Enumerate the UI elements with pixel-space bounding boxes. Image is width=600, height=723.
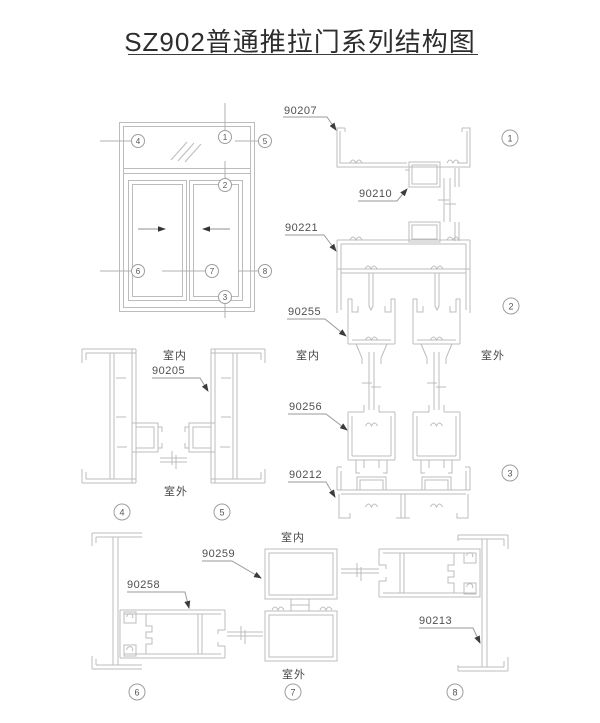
roller-hooks bbox=[356, 460, 387, 473]
section-3-profile bbox=[337, 405, 470, 518]
glass-tick bbox=[362, 383, 381, 387]
part-label-90221: 90221 bbox=[285, 222, 318, 234]
section-marker-6: 6 bbox=[129, 684, 146, 701]
profile-90255-sash-top bbox=[348, 299, 395, 410]
leader-90259 bbox=[202, 561, 261, 578]
callout-7: 7 bbox=[205, 264, 219, 278]
profile-90212-track bbox=[337, 467, 470, 518]
leader-90205 bbox=[152, 378, 208, 391]
track-rail-bump bbox=[357, 477, 386, 490]
screw-boss bbox=[431, 504, 443, 507]
part-label-90207: 90207 bbox=[284, 105, 317, 117]
glass-tick bbox=[172, 451, 176, 469]
part-label-90210: 90210 bbox=[359, 188, 392, 200]
glass-pane-with-tick bbox=[341, 563, 379, 581]
screw-boss bbox=[366, 504, 378, 507]
section-2-profile bbox=[337, 237, 470, 410]
indoor-label-bottom: 室内 bbox=[281, 529, 305, 545]
leader-90256 bbox=[288, 414, 347, 430]
leader-90212 bbox=[288, 482, 335, 497]
callout-1: 1 bbox=[218, 130, 232, 144]
interlock-hooks bbox=[291, 599, 309, 611]
glass-hatch bbox=[171, 142, 201, 162]
indoor-label-midleft: 室内 bbox=[163, 347, 187, 363]
left-jamb-profile bbox=[92, 533, 142, 669]
screw-port-clips bbox=[464, 553, 476, 594]
profile-90259-interlock bbox=[265, 549, 337, 661]
part-label-90213: 90213 bbox=[419, 615, 452, 627]
glass-tick bbox=[438, 200, 456, 204]
part-label-90255: 90255 bbox=[288, 306, 321, 318]
profile-90221-track bbox=[337, 240, 470, 313]
section-678-profiles bbox=[92, 533, 508, 671]
outdoor-label-bottom: 室外 bbox=[282, 666, 306, 682]
profile-90256-sash-bottom-right bbox=[413, 405, 460, 490]
section-marker-4: 4 bbox=[114, 504, 131, 521]
leader-90255 bbox=[287, 319, 346, 336]
leader-90207 bbox=[283, 117, 336, 130]
profile-90213-jamb bbox=[458, 535, 508, 671]
callout-2: 2 bbox=[218, 178, 232, 192]
section-marker-3: 3 bbox=[502, 465, 519, 482]
track-guide-rails bbox=[369, 273, 439, 310]
keyed-wall bbox=[448, 553, 454, 593]
section-marker-1: 1 bbox=[502, 130, 519, 147]
section-marker-5: 5 bbox=[214, 504, 231, 521]
left-sash-inner bbox=[133, 185, 183, 297]
part-label-90205: 90205 bbox=[152, 365, 185, 377]
leader-90213 bbox=[419, 628, 480, 643]
right-sash-stile-box bbox=[379, 549, 480, 597]
jamb-profile-mirrored bbox=[185, 349, 265, 483]
profile-90210 bbox=[405, 162, 440, 187]
left-sash-outer bbox=[129, 181, 187, 301]
part-label-90256: 90256 bbox=[289, 401, 322, 413]
right-sash-outer bbox=[190, 181, 243, 301]
screw-port-clips bbox=[124, 612, 136, 656]
outdoor-label-midleft: 室外 bbox=[164, 483, 188, 499]
callout-4: 4 bbox=[131, 134, 145, 148]
transom-divider bbox=[123, 169, 251, 174]
outdoor-label-midcol: 室外 bbox=[481, 347, 505, 363]
glass-pane bbox=[160, 458, 187, 462]
part-label-90259: 90259 bbox=[202, 548, 235, 560]
part-label-90258: 90258 bbox=[127, 579, 160, 591]
profile-90258-stile bbox=[120, 610, 225, 658]
section-1-profile bbox=[337, 128, 470, 242]
leader-90258 bbox=[127, 592, 189, 608]
glass-pane-with-tick bbox=[227, 626, 263, 644]
jamb-profile bbox=[82, 349, 162, 483]
callout-6: 6 bbox=[131, 264, 145, 278]
section-marker-8: 8 bbox=[447, 684, 464, 701]
section-marker-7: 7 bbox=[285, 684, 302, 701]
profile-90256-sash-bottom bbox=[348, 405, 395, 490]
callout-3: 3 bbox=[218, 290, 232, 304]
leader-90221 bbox=[285, 235, 336, 251]
section-marker-2: 2 bbox=[503, 298, 520, 315]
glass-pane bbox=[369, 352, 374, 410]
drawing-sheet: SZ902普通推拉门系列结构图 bbox=[0, 0, 600, 723]
slide-direction-arrows bbox=[138, 226, 230, 232]
profile-90207-inner bbox=[340, 131, 467, 163]
callout-8: 8 bbox=[258, 264, 272, 278]
profile-90255-sash-top-right bbox=[413, 299, 460, 410]
glass-stop-box bbox=[409, 222, 440, 242]
right-sash-inner bbox=[194, 185, 239, 297]
door-elevation bbox=[100, 103, 259, 318]
part-label-90212: 90212 bbox=[289, 469, 322, 481]
label-leaders bbox=[127, 117, 480, 643]
callout-5: 5 bbox=[258, 134, 272, 148]
keyed-wall bbox=[146, 614, 152, 654]
indoor-label-midcol: 室内 bbox=[296, 347, 320, 363]
internal-ticks bbox=[116, 378, 127, 447]
